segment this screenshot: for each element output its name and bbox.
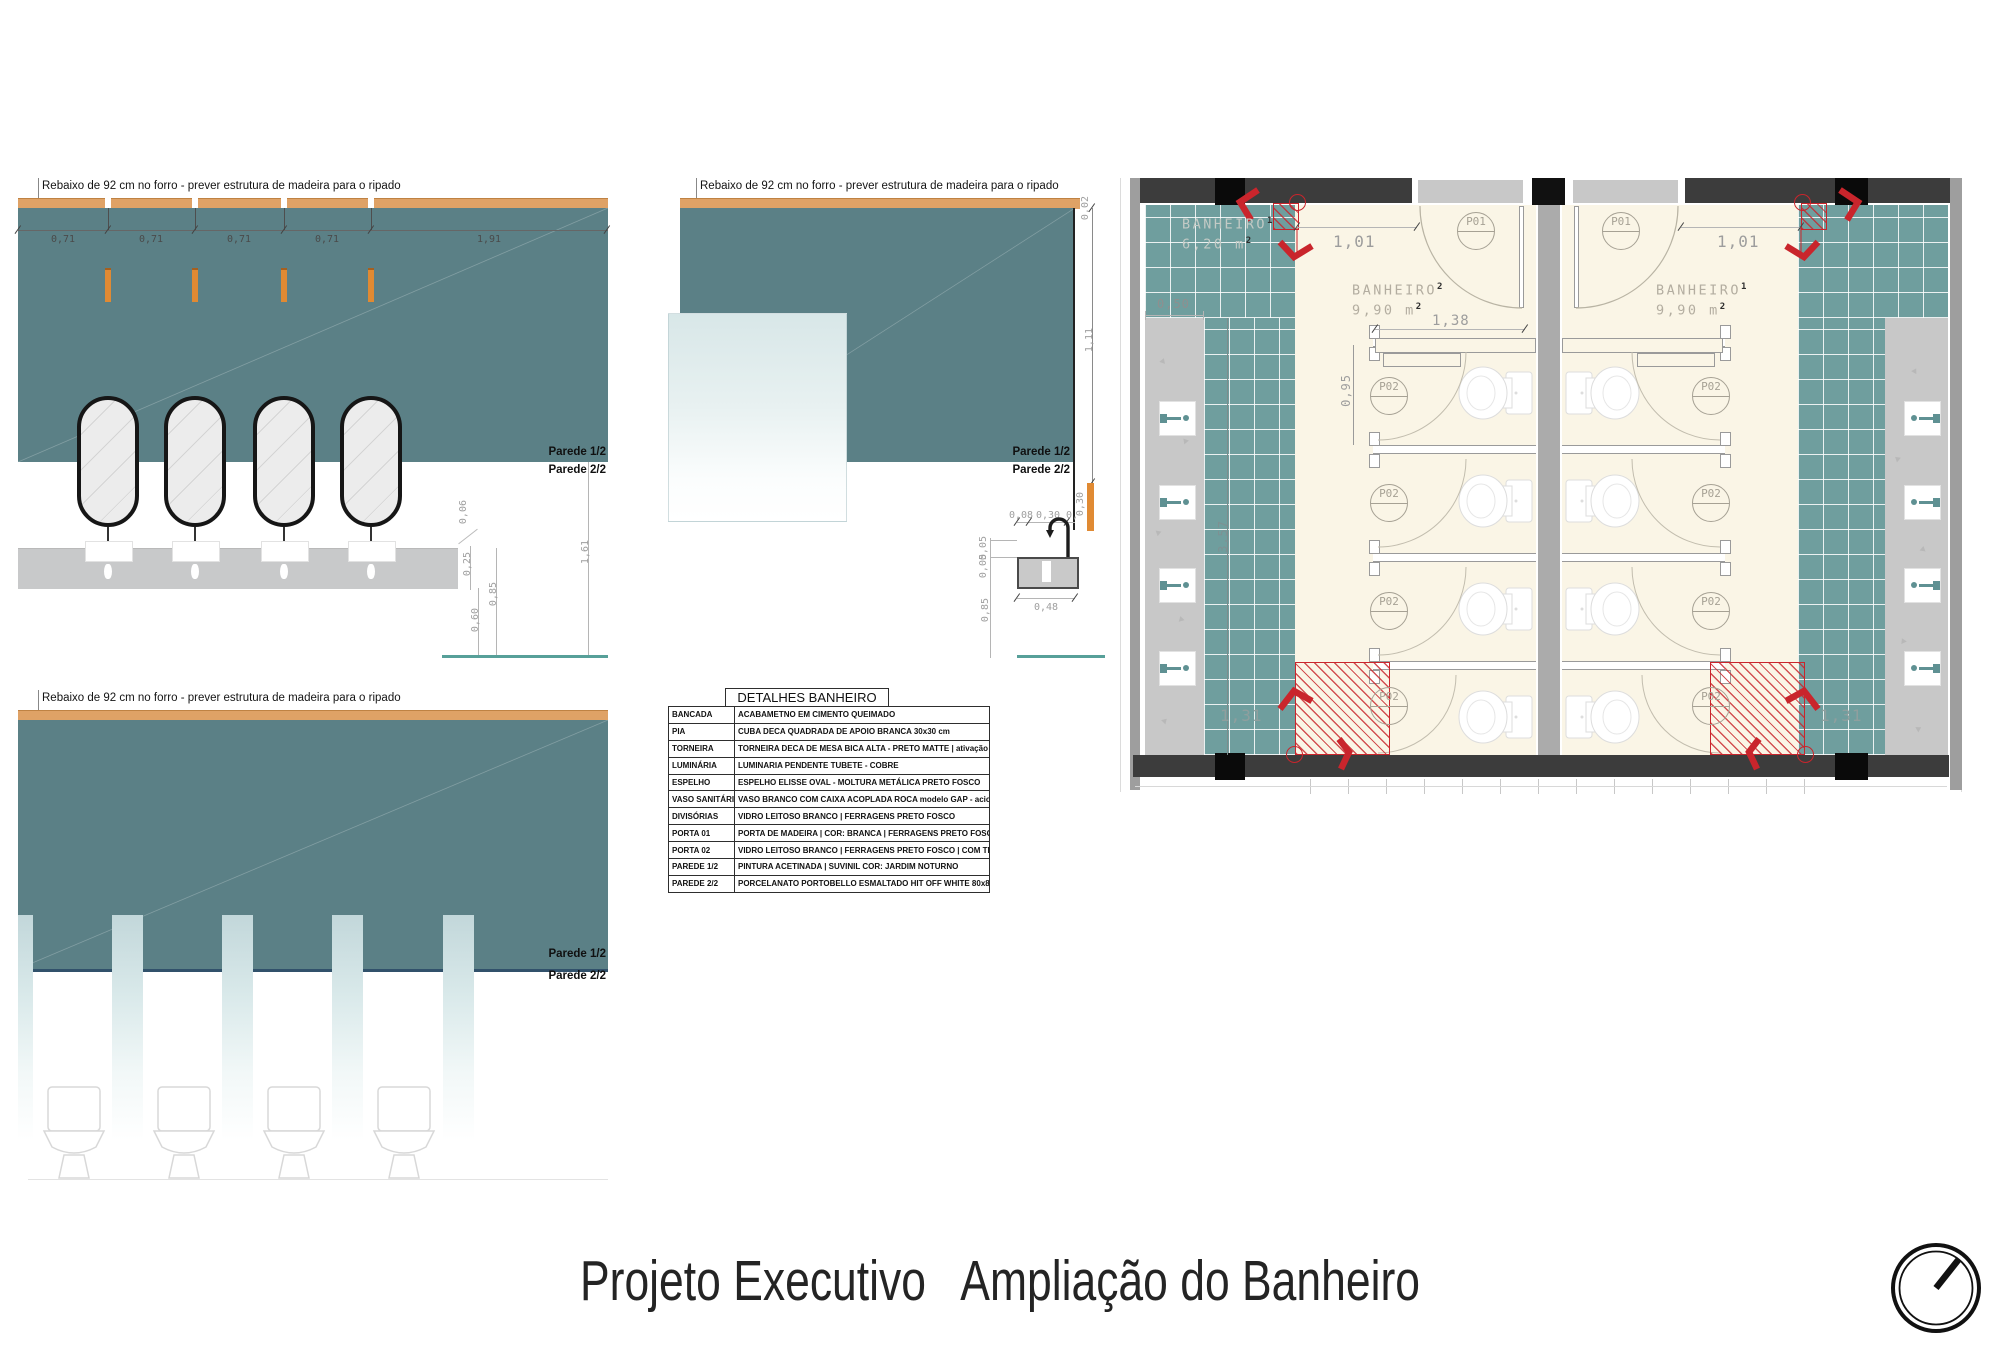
room-area: 6,20 m2	[1182, 236, 1251, 253]
dim-label: 0,95	[1339, 374, 1353, 407]
door-tag-label: P02	[1693, 380, 1729, 393]
elevation-toilets: Rebaixo de 92 cm no forro - prever estru…	[18, 690, 608, 1185]
dim-label: 0,85	[980, 598, 991, 622]
sink	[172, 541, 220, 562]
room-sup: 2	[1437, 282, 1442, 292]
wall-label-1: Parede 1/2	[448, 948, 606, 960]
drain	[104, 564, 112, 579]
table-row: PAREDE 1/2PINTURA ACETINADA | SUVINIL CO…	[669, 859, 990, 876]
room-area: 9,90 m2	[1656, 302, 1725, 319]
drain	[367, 564, 375, 579]
table-row: TORNEIRATORNEIRA DECA DE MESA BICA ALTA …	[669, 740, 990, 757]
dim-label: 1,31	[1220, 706, 1263, 725]
drain	[191, 564, 199, 579]
door-tag-p02: P02	[1692, 377, 1730, 415]
faucet-stem	[370, 527, 372, 542]
room-label: BANHEIRO1	[1182, 216, 1272, 233]
toilet-elevation	[259, 1085, 329, 1180]
door-tag-p02: P02	[1370, 484, 1408, 522]
dim-label: 0,08	[1009, 510, 1033, 521]
door-tag-label: P02	[1693, 690, 1729, 703]
door-tag-label: P02	[1371, 487, 1407, 500]
door-tag-p02: P02	[1692, 687, 1730, 725]
faucet-stem	[283, 527, 285, 542]
table-cell: VIDRO LEITOSO BRANCO | FERRAGENS PRETO F…	[735, 842, 990, 859]
door-tag-label: P01	[1603, 215, 1639, 228]
wall-section-line	[1073, 208, 1075, 530]
floor-line	[442, 655, 608, 658]
dim-label: 1,01	[1717, 232, 1760, 251]
table-cell: ESPELHO	[669, 774, 735, 791]
table-cell: LUMINÁRIA	[669, 757, 735, 774]
table-cell: VIDRO LEITOSO BRANCO | FERRAGENS PRETO F…	[735, 808, 990, 825]
slat-notch	[192, 198, 198, 208]
dim-label: 0,05	[978, 554, 989, 578]
sheet-title: Projeto Executivo Ampliação do Banheiro	[500, 1248, 1500, 1314]
door-tag-p01: P01	[1602, 212, 1640, 250]
faucet-stem	[107, 527, 109, 542]
floor-line	[1017, 655, 1105, 658]
table-title: DETALHES BANHEIRO	[725, 688, 889, 707]
wall-label-1: Parede 1/2	[448, 446, 606, 458]
section-marker-circle	[1794, 194, 1811, 211]
wall-label-1: Parede 1/2	[914, 446, 1070, 458]
table-row: PIACUBA DECA QUADRADA DE APOIO BRANCA 30…	[669, 723, 990, 740]
section-marker-circle	[1289, 194, 1306, 211]
table-cell: TORNEIRA DECA DE MESA BICA ALTA - PRETO …	[735, 740, 990, 757]
slat-notch	[105, 198, 111, 208]
dim-label: 0,60	[470, 608, 481, 632]
faucet-section	[1042, 512, 1076, 560]
wall-label-2: Parede 2/2	[448, 970, 606, 982]
door-tag-label: P02	[1371, 595, 1407, 608]
table-row: BANCADAACABAMETNO EM CIMENTO QUEIMADO	[669, 707, 990, 724]
door-tag-label: P02	[1693, 595, 1729, 608]
table-cell: PORTA DE MADEIRA | COR: BRANCA | FERRAGE…	[735, 825, 990, 842]
room-area-value: 6,20 m	[1182, 237, 1246, 253]
dim-label: 0,71	[51, 234, 75, 245]
elevation-sinks: Rebaixo de 92 cm no forro - prever estru…	[18, 178, 608, 673]
title-leader-line	[696, 178, 697, 198]
table-cell: VASO BRANCO COM CAIXA ACOPLADA ROCA mode…	[735, 791, 990, 808]
glass-partition	[222, 915, 253, 1180]
pendant-light-section	[1087, 483, 1094, 531]
pendant-light	[105, 268, 111, 302]
door-tag-label: P02	[1371, 690, 1407, 703]
pendant-light	[281, 268, 287, 302]
door-tag-label: P02	[1693, 487, 1729, 500]
table-row: LUMINÁRIALUMINARIA PENDENTE TUBETE - COB…	[669, 757, 990, 774]
dim-label: 1,91	[477, 234, 501, 245]
table-cell: PAREDE 2/2	[669, 875, 735, 892]
glass-door-panel	[668, 313, 847, 522]
table-cell: ESPELHO ELISSE OVAL - MOLTURA METÁLICA P…	[735, 774, 990, 791]
slat-notch	[368, 198, 374, 208]
table-cell: LUMINARIA PENDENTE TUBETE - COBRE	[735, 757, 990, 774]
title-leader-line	[38, 690, 39, 710]
sink	[85, 541, 133, 562]
teal-wall	[18, 720, 608, 969]
oval-mirror	[77, 396, 139, 527]
sink	[261, 541, 309, 562]
room-area-value: 9,90 m	[1352, 303, 1416, 319]
toilet-elevation	[149, 1085, 219, 1180]
door-tag-p01: P01	[1457, 212, 1495, 250]
dim-label: 0,71	[227, 234, 251, 245]
table-cell: VASO SANITÁRIO	[669, 791, 735, 808]
dim-label: 0,50	[1157, 297, 1190, 311]
door-tag-p02: P02	[1692, 484, 1730, 522]
wall-label-2: Parede 2/2	[448, 464, 606, 476]
room-area: 9,90 m2	[1352, 302, 1421, 319]
room-name: BANHEIRO	[1352, 283, 1437, 299]
elevation-section: Rebaixo de 92 cm no forro - prever estru…	[668, 178, 1105, 673]
oval-mirror	[340, 396, 402, 527]
dim-label: 0,06	[458, 500, 469, 524]
room-area-sup: 2	[1416, 302, 1421, 312]
door-tag-p02: P02	[1370, 592, 1408, 630]
table-cell: PORCELANATO PORTOBELLO ESMALTADO HIT OFF…	[735, 875, 990, 892]
dim-label: 1,61	[580, 540, 591, 564]
oval-mirror	[164, 396, 226, 527]
wall-label-2: Parede 2/2	[914, 464, 1070, 476]
table-row: ESPELHOESPELHO ELISSE OVAL - MOLTURA MET…	[669, 774, 990, 791]
room-area-value: 9,90 m	[1656, 303, 1720, 319]
elevation-note: Rebaixo de 92 cm no forro - prever estru…	[42, 180, 401, 192]
dim-label: 0,48	[1034, 602, 1058, 613]
floor-line	[28, 1179, 608, 1180]
table-cell: PAREDE 1/2	[669, 859, 735, 876]
door-tag-p02: P02	[1370, 687, 1408, 725]
dim-label: 3,57	[1216, 520, 1230, 553]
glass-partition	[112, 915, 143, 1180]
north-arrow-icon	[1886, 1238, 1986, 1338]
sheet-title-right: Ampliação do Banheiro	[960, 1248, 1420, 1314]
dim-label: 0,25	[462, 552, 473, 576]
oval-mirror	[253, 396, 315, 527]
toilet-elevation	[369, 1085, 439, 1180]
section-marker-circle	[1286, 746, 1303, 763]
table-body: BANCADAACABAMETNO EM CIMENTO QUEIMADO PI…	[668, 706, 990, 893]
table-cell: PORTA 01	[669, 825, 735, 842]
door-tag-p02: P02	[1692, 592, 1730, 630]
faucet-stem	[194, 527, 196, 542]
glass-partition	[18, 915, 33, 1180]
room-name: BANHEIRO	[1656, 283, 1741, 299]
table-cell: BANCADA	[669, 707, 735, 724]
dim-label: 0,71	[139, 234, 163, 245]
counter-slot	[1042, 561, 1051, 582]
table-row: VASO SANITÁRIOVASO BRANCO COM CAIXA ACOP…	[669, 791, 990, 808]
table-cell: TORNEIRA	[669, 740, 735, 757]
dim-label: 0,71	[315, 234, 339, 245]
room-sup: 1	[1741, 282, 1746, 292]
elevation-note: Rebaixo de 92 cm no forro - prever estru…	[700, 180, 1059, 192]
drawing-sheet: Rebaixo de 92 cm no forro - prever estru…	[0, 0, 2000, 1350]
dim-label: 1,01	[1333, 232, 1376, 251]
leader	[458, 529, 478, 545]
toilet-elevation	[39, 1085, 109, 1180]
door-tag-p02: P02	[1370, 377, 1408, 415]
table-cell: ACABAMETNO EM CIMENTO QUEIMADO	[735, 707, 990, 724]
sheet-title-left: Projeto Executivo	[580, 1248, 926, 1314]
dim-label: 0,85	[488, 582, 499, 606]
table-row: PAREDE 2/2PORCELANATO PORTOBELLO ESMALTA…	[669, 875, 990, 892]
floor-plan: P01 P01 P02 P02 P02 P02 P02 P02 P02 P02 …	[1120, 178, 1962, 800]
room-area-sup: 2	[1720, 302, 1725, 312]
table-cell: PORTA 02	[669, 842, 735, 859]
pendant-light	[192, 268, 198, 302]
table-cell: DIVISÓRIAS	[669, 808, 735, 825]
table-cell: CUBA DECA QUADRADA DE APOIO BRANCA 30x30…	[735, 723, 990, 740]
dim-label: 1,11	[1084, 328, 1095, 352]
sink	[348, 541, 396, 562]
door-tag-label: P02	[1371, 380, 1407, 393]
slat-notch	[281, 198, 287, 208]
section-marker-circle	[1797, 746, 1814, 763]
glass-partition	[332, 915, 363, 1180]
room-label: BANHEIRO2	[1352, 282, 1442, 299]
room-area-sup: 2	[1246, 236, 1251, 246]
table-row: PORTA 02VIDRO LEITOSO BRANCO | FERRAGENS…	[669, 842, 990, 859]
dim-label: 1,38	[1432, 313, 1470, 329]
door-tag-label: P01	[1458, 215, 1494, 228]
table-row: DIVISÓRIASVIDRO LEITOSO BRANCO | FERRAGE…	[669, 808, 990, 825]
room-sup: 1	[1267, 216, 1272, 226]
elevation-note: Rebaixo de 92 cm no forro - prever estru…	[42, 692, 401, 704]
table-cell: PIA	[669, 723, 735, 740]
drain	[280, 564, 288, 579]
title-leader-line	[38, 178, 39, 198]
room-name: BANHEIRO	[1182, 217, 1267, 233]
pendant-light	[368, 268, 374, 302]
table-cell: PINTURA ACETINADA | SUVINIL COR: JARDIM …	[735, 859, 990, 876]
room-label: BANHEIRO1	[1656, 282, 1746, 299]
dim-label: 1,31	[1820, 706, 1863, 725]
table-row: PORTA 01PORTA DE MADEIRA | COR: BRANCA |…	[669, 825, 990, 842]
